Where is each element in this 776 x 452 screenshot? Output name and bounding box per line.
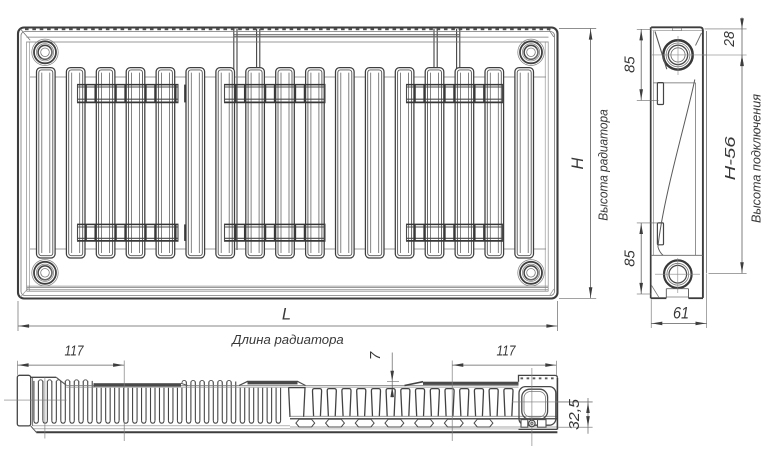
svg-text:H-56: H-56 (722, 136, 739, 181)
svg-text:85: 85 (621, 56, 638, 73)
svg-text:H: H (569, 157, 587, 169)
svg-text:L: L (282, 305, 291, 323)
svg-text:Высота радиатора: Высота радиатора (595, 109, 610, 221)
svg-text:117: 117 (497, 344, 517, 360)
svg-text:28: 28 (722, 31, 738, 47)
svg-text:Длина радиатора: Длина радиатора (230, 332, 344, 347)
svg-text:117: 117 (65, 344, 85, 360)
svg-text:32,5: 32,5 (567, 398, 583, 430)
svg-text:85: 85 (621, 250, 638, 267)
svg-text:7: 7 (367, 351, 384, 360)
svg-text:Высота подключения: Высота подключения (749, 94, 764, 223)
svg-text:61: 61 (673, 305, 689, 323)
